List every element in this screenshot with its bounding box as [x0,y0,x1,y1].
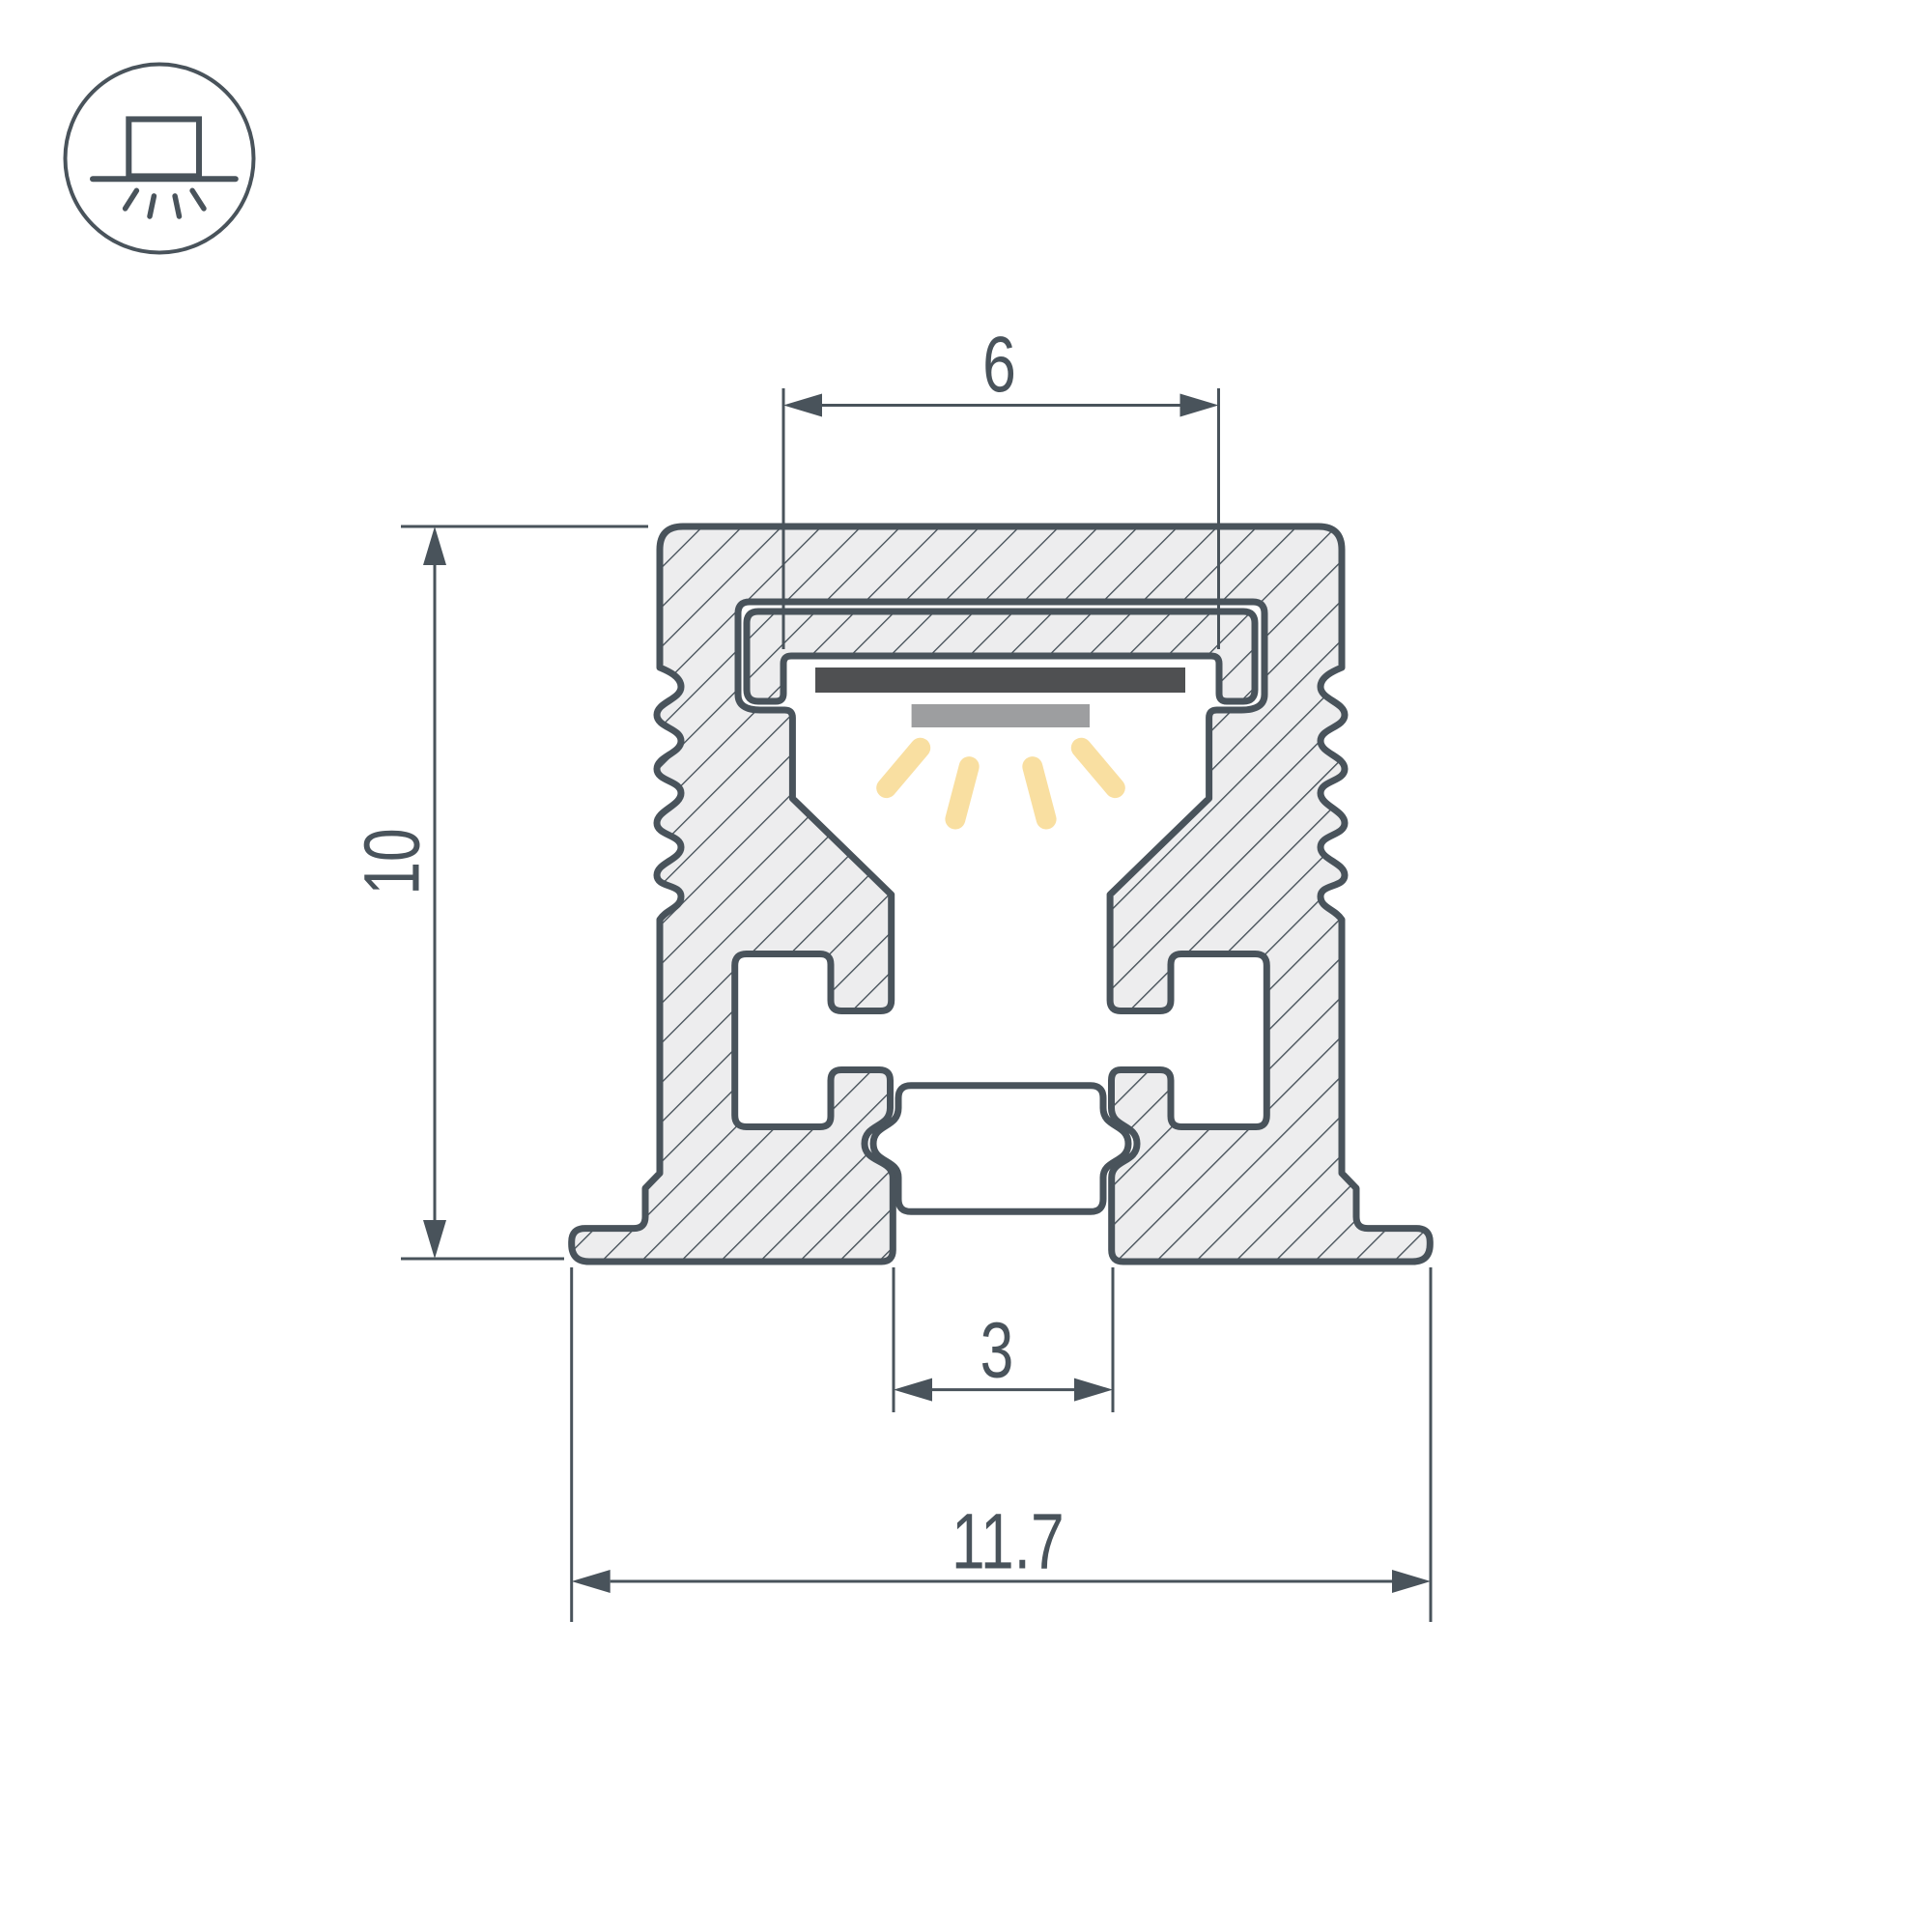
svg-text:6: 6 [982,321,1016,409]
svg-text:3: 3 [980,1306,1014,1394]
svg-text:10: 10 [348,828,436,895]
svg-text:11.7: 11.7 [952,1497,1065,1585]
